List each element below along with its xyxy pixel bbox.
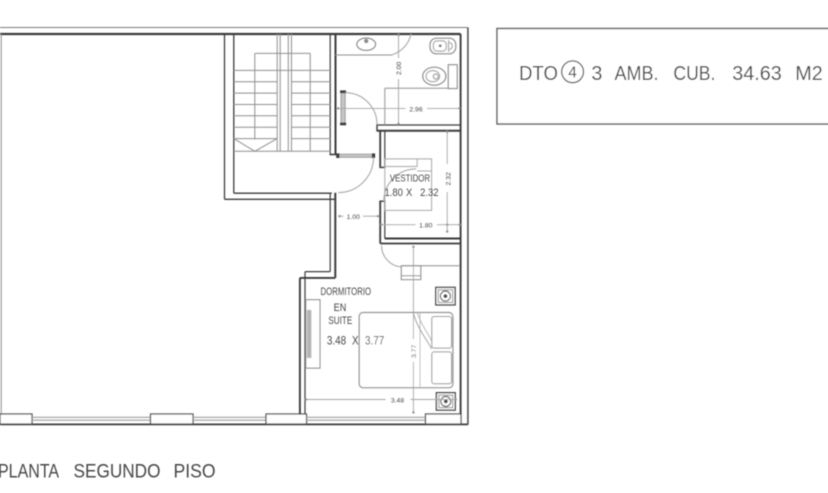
svg-text:1.80: 1.80 xyxy=(419,223,432,230)
svg-text:AMB.: AMB. xyxy=(615,63,659,85)
svg-text:3: 3 xyxy=(591,63,602,85)
svg-text:3.48: 3.48 xyxy=(327,335,346,348)
svg-text:2.96: 2.96 xyxy=(409,106,422,113)
svg-text:3.48: 3.48 xyxy=(391,398,404,405)
svg-text:1.80: 1.80 xyxy=(385,187,404,199)
svg-text:M2: M2 xyxy=(795,63,823,85)
svg-text:3.77: 3.77 xyxy=(365,335,384,348)
svg-text:2.00: 2.00 xyxy=(396,62,403,75)
svg-text:DTO: DTO xyxy=(519,63,558,85)
svg-text:CUB.: CUB. xyxy=(673,62,715,84)
svg-text:PISO: PISO xyxy=(174,460,216,482)
svg-text:2.32: 2.32 xyxy=(420,187,439,199)
svg-text:DORMITORIO: DORMITORIO xyxy=(321,286,372,299)
svg-text:X: X xyxy=(352,335,359,348)
svg-text:1.00: 1.00 xyxy=(347,214,360,221)
svg-text:X: X xyxy=(406,187,412,199)
svg-text:EN: EN xyxy=(334,302,347,314)
svg-text:3.77: 3.77 xyxy=(411,345,418,358)
svg-text:SUITE: SUITE xyxy=(328,315,352,328)
svg-text:PLANTA: PLANTA xyxy=(0,460,59,482)
svg-text:VESTIDOR: VESTIDOR xyxy=(390,172,430,183)
svg-text:34.63: 34.63 xyxy=(732,63,782,85)
svg-text:4: 4 xyxy=(568,64,577,81)
svg-text:SEGUNDO: SEGUNDO xyxy=(74,461,161,482)
svg-text:2.32: 2.32 xyxy=(446,172,453,185)
